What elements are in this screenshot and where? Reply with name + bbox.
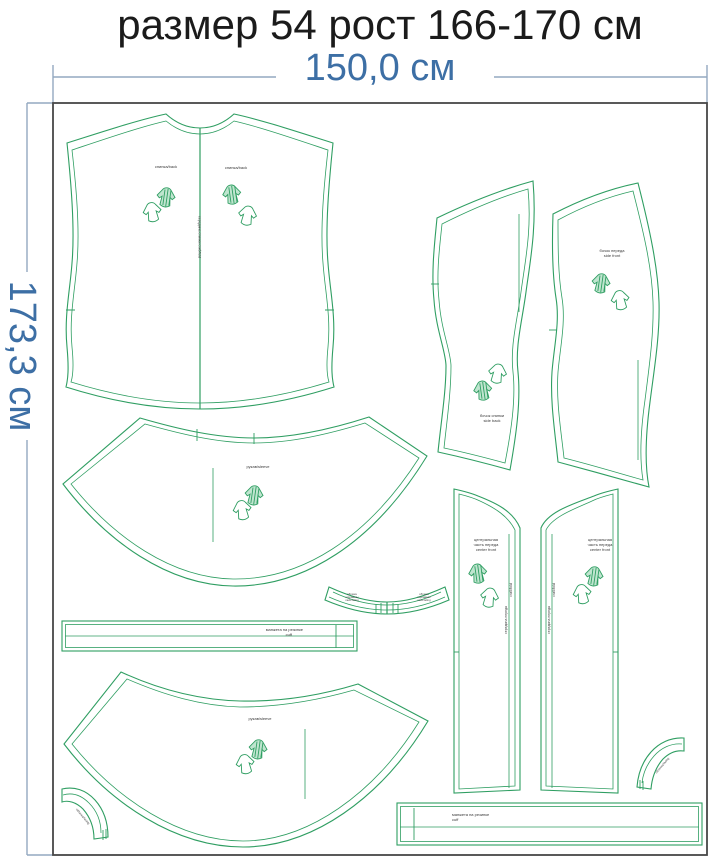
piece-label: neck facing [417,598,431,602]
grainline-label: сгиб/fold [509,583,513,597]
pattern-piece-sleeve-bottom: рукав/sleeve [64,672,428,847]
piece-label: neck facing [345,598,359,602]
piece-label: cuff [286,632,293,637]
width-dimension-line [53,65,707,103]
pattern-sheet: спинка/back спинка/back середина спинки … [0,0,715,863]
pattern-piece-sleeve-top: рукав/sleeve [63,417,427,586]
grainline-label: середина переда [504,606,508,634]
piece-label: спинка/back [155,164,177,169]
pattern-piece-center-front-left: центральная часть переда center front се… [454,489,520,793]
pattern-piece-back: спинка/back спинка/back середина спинки … [66,114,334,409]
piece-label: cuff [452,817,459,822]
pattern-piece-side-back: бочок спинки side back [431,181,534,470]
pattern-piece-band-bottom-left: обтачка/facing [62,788,108,840]
piece-label: center front [476,547,497,552]
piece-label: side back [484,418,501,423]
piece-label: спинка/back [225,165,247,170]
piece-label: рукав/sleeve [248,716,272,721]
pattern-piece-neckband: обтачка горловины neck facing обтачка го… [325,587,449,614]
height-dimension-line [27,103,53,855]
grainline-label: сгиб/fold [552,583,556,597]
piece-label: рукав/sleeve [246,464,270,469]
pattern-piece-center-front-right: центральная часть переда center front се… [541,489,618,793]
fold-line-label: середина спинки сгиб/fold [198,216,202,258]
pattern-piece-cuff-strip-bottom: манжета на резинке cuff [397,803,702,845]
pattern-piece-side-front: бочок переда side front [549,183,659,487]
piece-label: side front [604,253,621,258]
pattern-piece-cuff-strip-left: манжета на резинке cuff [62,621,357,651]
pattern-piece-band-bottom-right: обтачка/facing [637,738,684,790]
grainline-label: середина переда [547,606,551,634]
piece-label: center front [590,547,611,552]
